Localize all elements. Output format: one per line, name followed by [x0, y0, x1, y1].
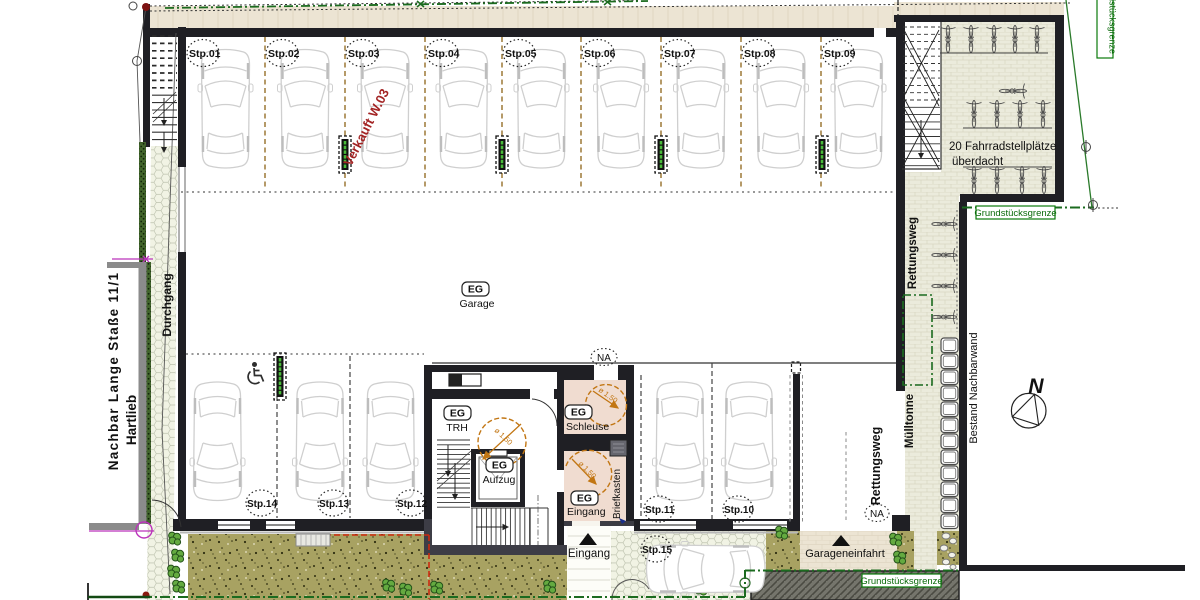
svg-text:Mülltonne: Mülltonne — [904, 394, 916, 448]
svg-text:NA: NA — [870, 509, 884, 520]
svg-text:Stp.02: Stp.02 — [268, 48, 300, 60]
svg-text:Stp.13: Stp.13 — [319, 499, 349, 510]
svg-text:Stp.04: Stp.04 — [428, 48, 460, 60]
svg-text:Grundstücksgrenze: Grundstücksgrenze — [1108, 0, 1118, 54]
svg-text:Stp.14: Stp.14 — [247, 499, 277, 510]
svg-text:Durchgang: Durchgang — [160, 273, 174, 336]
svg-text:Stp.07: Stp.07 — [664, 48, 696, 60]
svg-text:EG: EG — [571, 407, 586, 419]
svg-text:Eingang: Eingang — [567, 506, 606, 518]
svg-text:Stp.08: Stp.08 — [744, 48, 776, 60]
svg-text:Rettungsweg: Rettungsweg — [907, 217, 919, 289]
svg-text:Bestand Nachbarwand: Bestand Nachbarwand — [968, 332, 980, 443]
svg-text:Nachbar Lange Staße 11/1: Nachbar Lange Staße 11/1 — [106, 272, 121, 471]
svg-text:Eingang: Eingang — [568, 548, 610, 560]
svg-text:Stp.11: Stp.11 — [645, 505, 675, 516]
svg-text:Stp.15: Stp.15 — [642, 545, 672, 556]
svg-text:Garage: Garage — [459, 298, 494, 310]
svg-text:Stp.01: Stp.01 — [189, 48, 221, 60]
svg-text:TRH: TRH — [446, 422, 468, 434]
svg-text:Stp.06: Stp.06 — [584, 48, 616, 60]
svg-text:EG: EG — [468, 284, 483, 296]
svg-text:NA: NA — [597, 353, 611, 364]
svg-text:Stp.12: Stp.12 — [397, 499, 427, 510]
svg-text:EG: EG — [450, 408, 465, 420]
svg-text:N: N — [1028, 375, 1044, 398]
svg-text:Stp.03: Stp.03 — [348, 48, 380, 60]
svg-text:Stp.09: Stp.09 — [824, 48, 856, 60]
svg-text:Grundstücksgrenze: Grundstücksgrenze — [974, 208, 1056, 219]
svg-text:Grundstücksgrenze: Grundstücksgrenze — [860, 576, 942, 587]
svg-text:überdacht: überdacht — [952, 156, 1004, 168]
svg-text:Schleuse: Schleuse — [566, 421, 609, 433]
svg-text:Stp.10: Stp.10 — [724, 505, 754, 516]
svg-text:Stp.05: Stp.05 — [505, 48, 537, 60]
svg-text:EG: EG — [577, 493, 592, 505]
svg-text:Garageneinfahrt: Garageneinfahrt — [805, 548, 885, 560]
svg-text:20 Fahrradstellplätze: 20 Fahrradstellplätze — [949, 141, 1056, 153]
svg-text:Aufzug: Aufzug — [483, 474, 516, 486]
svg-text:EG: EG — [492, 460, 507, 472]
svg-text:Rettungsweg: Rettungsweg — [869, 427, 883, 505]
svg-text:Briefkasten: Briefkasten — [612, 469, 623, 519]
svg-text:Hartlieb: Hartlieb — [124, 395, 139, 445]
